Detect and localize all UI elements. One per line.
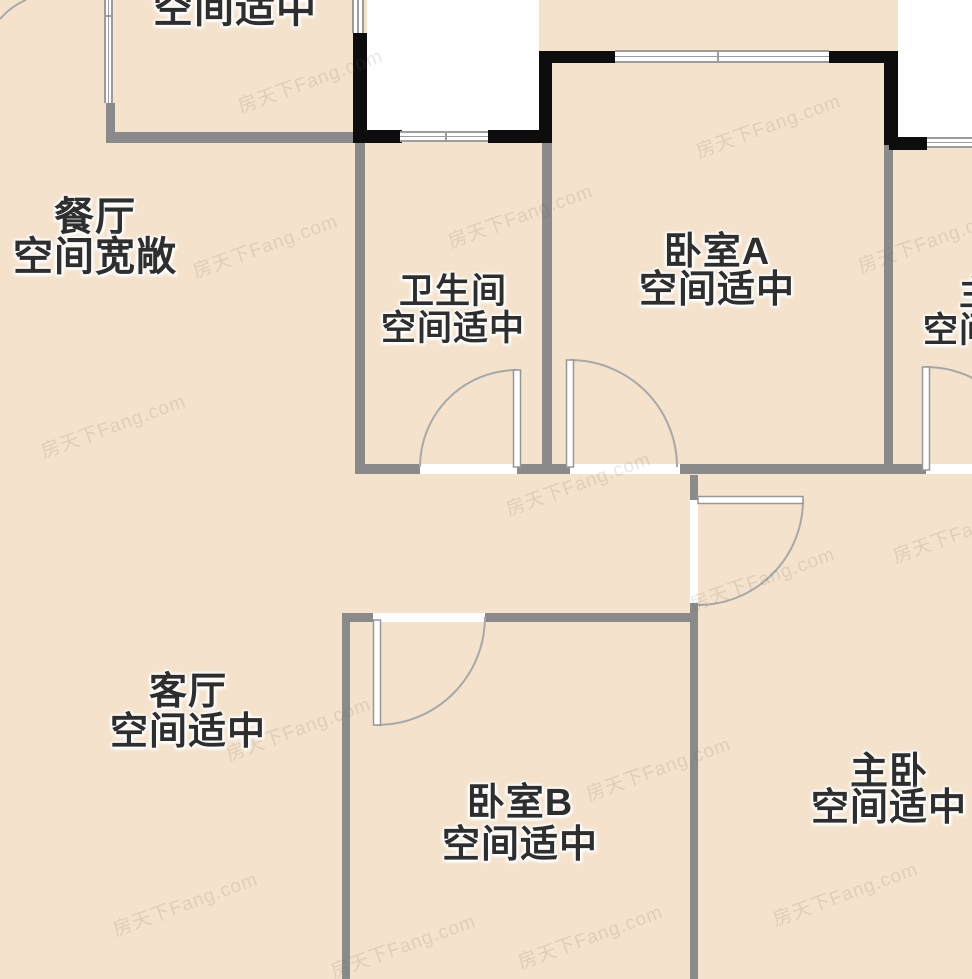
door-arc (377, 617, 485, 725)
room-status: 空间适中 (381, 310, 525, 347)
room-label-bedroom-a: 卧室A 空间适中 (639, 233, 795, 309)
room-name: 卫生间 (381, 273, 525, 310)
room-label-bathroom: 卫生间 空间适中 (381, 273, 525, 347)
door-arc (0, 0, 26, 19)
door-leaf (567, 360, 574, 467)
room-name: 卧室B (442, 782, 598, 824)
door-leaf (374, 620, 381, 725)
room-status: 空间适中 (639, 271, 795, 309)
room-label-dining: 餐厅 空间宽敞 (13, 197, 177, 277)
door-arc (420, 370, 517, 467)
room-label-master: 主卧 空间适中 (811, 754, 967, 826)
room-status: 空间适中 (811, 790, 967, 826)
room-name: 卧室A (639, 233, 795, 271)
room-name: 主卫 (923, 275, 972, 312)
door-arc (698, 500, 803, 605)
room-name: 餐厅 (13, 197, 177, 237)
room-label-kitchen: 空间适中 (153, 0, 317, 30)
floor-plan: 空间适中 餐厅 空间宽敞 卫生间 空间适中 卧室A 空间适中 主卫 空间适中 客… (0, 0, 972, 979)
room-label-living: 客厅 空间适中 (110, 672, 266, 752)
room-label-master-bath: 主卫 空间适中 (923, 275, 972, 349)
room-name: 主卧 (811, 754, 967, 790)
room-status: 空间宽敞 (13, 237, 177, 277)
door-leaf (923, 367, 930, 470)
room-name: 客厅 (110, 672, 266, 712)
room-status: 空间适中 (442, 824, 598, 866)
door-leaf (698, 497, 803, 504)
room-status: 空间适中 (923, 312, 972, 349)
room-status: 空间适中 (110, 712, 266, 752)
room-label-bedroom-b: 卧室B 空间适中 (442, 782, 598, 866)
door-arc (926, 367, 972, 470)
door-arc (570, 360, 677, 467)
room-status: 空间适中 (153, 0, 317, 30)
door-leaf (514, 370, 521, 467)
